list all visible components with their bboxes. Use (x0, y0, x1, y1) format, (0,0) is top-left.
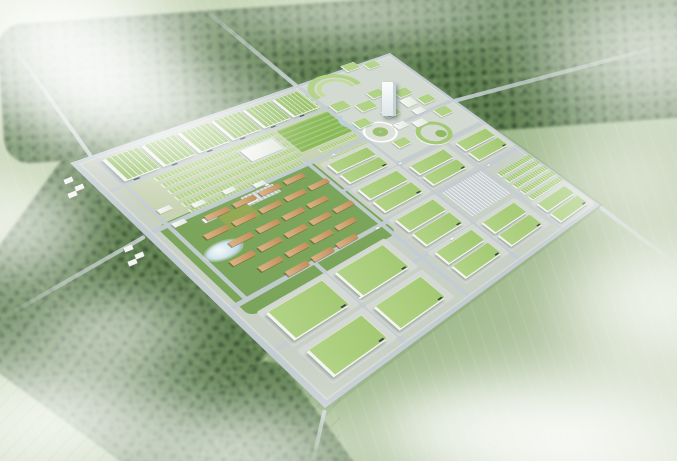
aerial-rendering-scene (0, 0, 677, 461)
cloud-layer (0, 0, 677, 461)
cloud (510, 110, 677, 250)
cloud (5, 275, 225, 385)
